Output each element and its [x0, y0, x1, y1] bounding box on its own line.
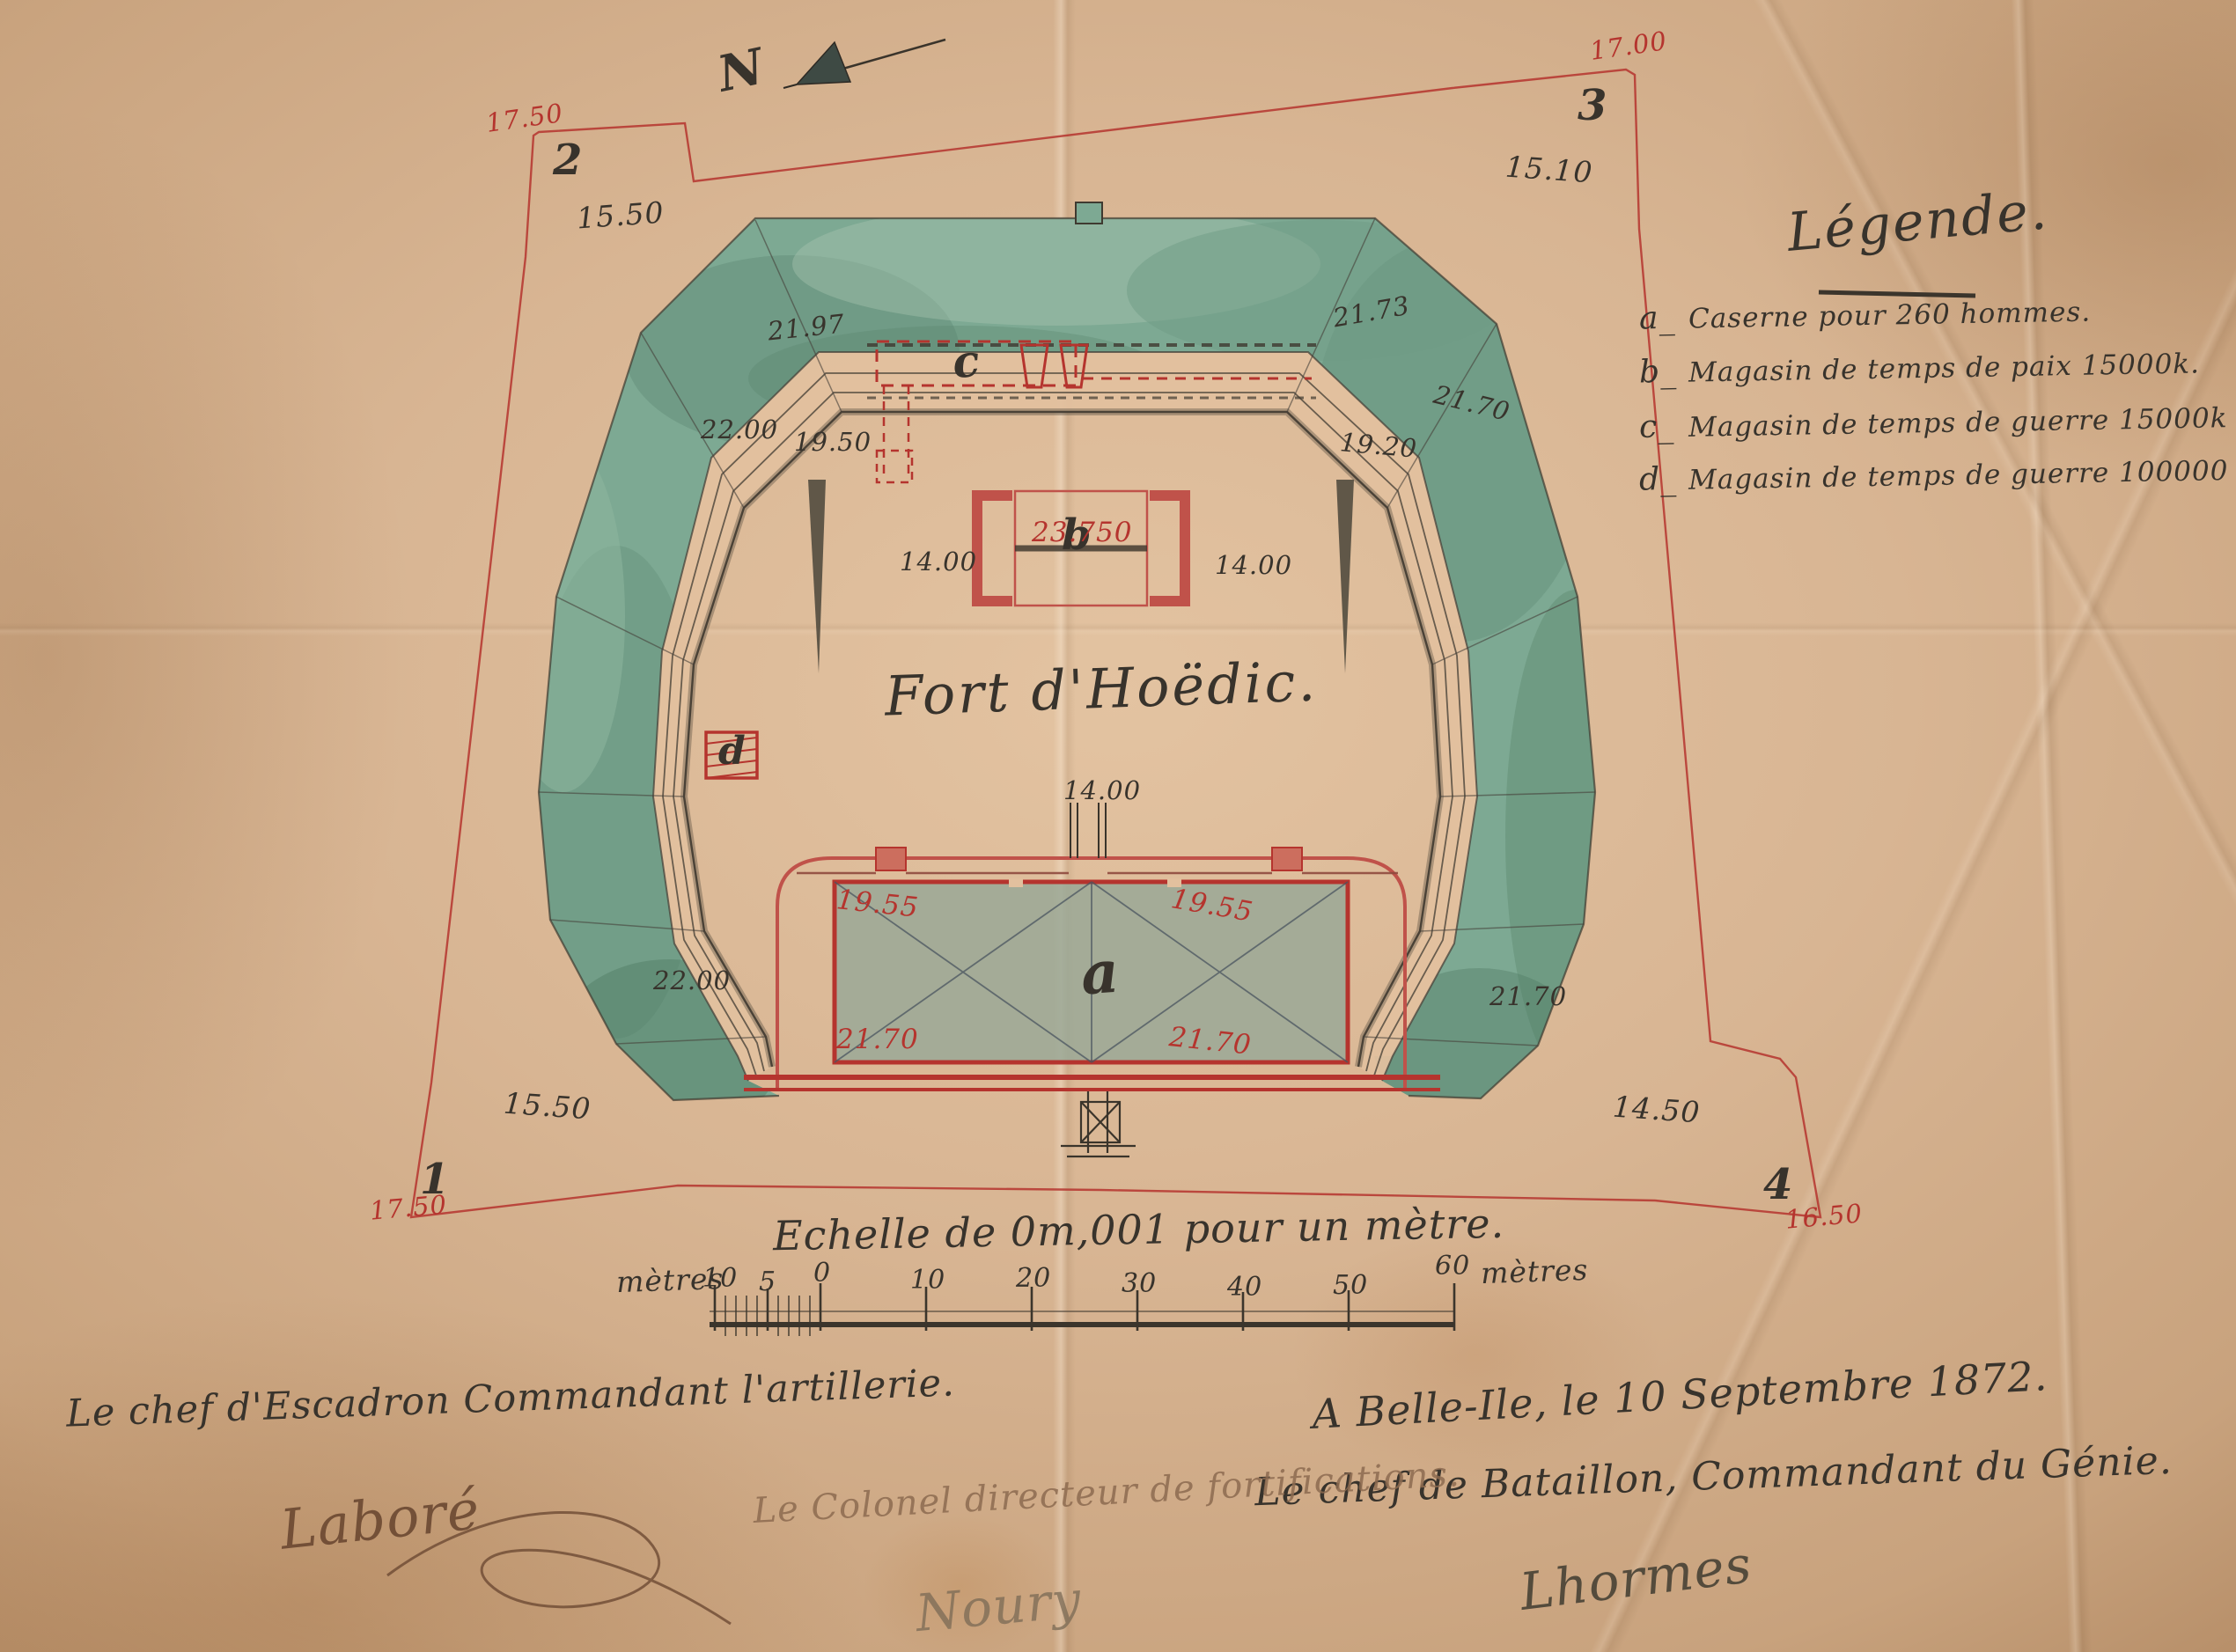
measure-19-20: 19.20	[1339, 430, 1418, 462]
fort-hoedic-plan: N Fort d'Hoëdic. Légende. a_Caserne pour…	[0, 0, 2236, 1652]
measure-14-00-right: 14.00	[1215, 553, 1292, 578]
signature-noury: Noury	[914, 1574, 1084, 1639]
legend-key-a: a_	[1639, 303, 1689, 335]
measure-15-10-tr: 15.10	[1504, 152, 1594, 187]
scale-caption: Echelle de 0m,001 pour un mètre.	[773, 1203, 1505, 1256]
measure-23-750: 23.750	[1032, 519, 1132, 547]
scale-tick-m10: 10	[702, 1266, 738, 1292]
measure-15-50-bl: 15.50	[503, 1089, 592, 1124]
corner-2: 2	[553, 139, 583, 181]
measure-14-00-gate: 14.00	[1063, 778, 1141, 804]
measure-22-00-upper: 22.00	[701, 417, 778, 443]
scale-tick-50: 50	[1333, 1273, 1368, 1299]
legend-key-b: b_	[1639, 356, 1689, 389]
legend-key-d: d_	[1639, 464, 1689, 496]
measure-21-70-lower: 21.70	[1489, 984, 1567, 1010]
legend-key-c: c_	[1639, 411, 1689, 444]
scale-tick-60: 60	[1435, 1253, 1470, 1280]
map-title: Fort d'Hoëdic.	[884, 654, 1319, 723]
measure-14-50-br: 14.50	[1612, 1092, 1702, 1127]
measure-17-50-bl: 17.50	[369, 1192, 448, 1224]
scale-unit-right: mètres	[1480, 1255, 1588, 1288]
north-label: N	[714, 41, 769, 99]
scale-tick-0: 0	[813, 1260, 831, 1287]
measure-21-70-bl: 21.70	[836, 1026, 919, 1054]
plan-letter-d: d	[718, 732, 747, 771]
measure-14-00-left: 14.00	[900, 549, 977, 575]
legend-item-a: a_Caserne pour 260 hommes.	[1639, 296, 2092, 335]
scale-tick-10: 10	[910, 1267, 945, 1294]
measure-22-00-lower: 22.00	[653, 968, 731, 994]
scale-tick-m5: 5	[759, 1269, 776, 1296]
plan-letter-c: c	[950, 338, 982, 385]
plan-letter-a: a	[1079, 943, 1122, 1003]
measure-16-50-br: 16.50	[1784, 1200, 1864, 1233]
corner-4: 4	[1763, 1164, 1793, 1206]
measure-15-50-tl: 15.50	[576, 198, 666, 233]
north-arrow	[783, 40, 945, 88]
corner-3: 3	[1578, 84, 1607, 127]
measure-19-50: 19.50	[794, 430, 872, 455]
scale-tick-40: 40	[1227, 1274, 1262, 1301]
scale-tick-20: 20	[1016, 1266, 1051, 1292]
legend-underline	[1819, 292, 1975, 296]
scale-tick-30: 30	[1122, 1271, 1157, 1297]
